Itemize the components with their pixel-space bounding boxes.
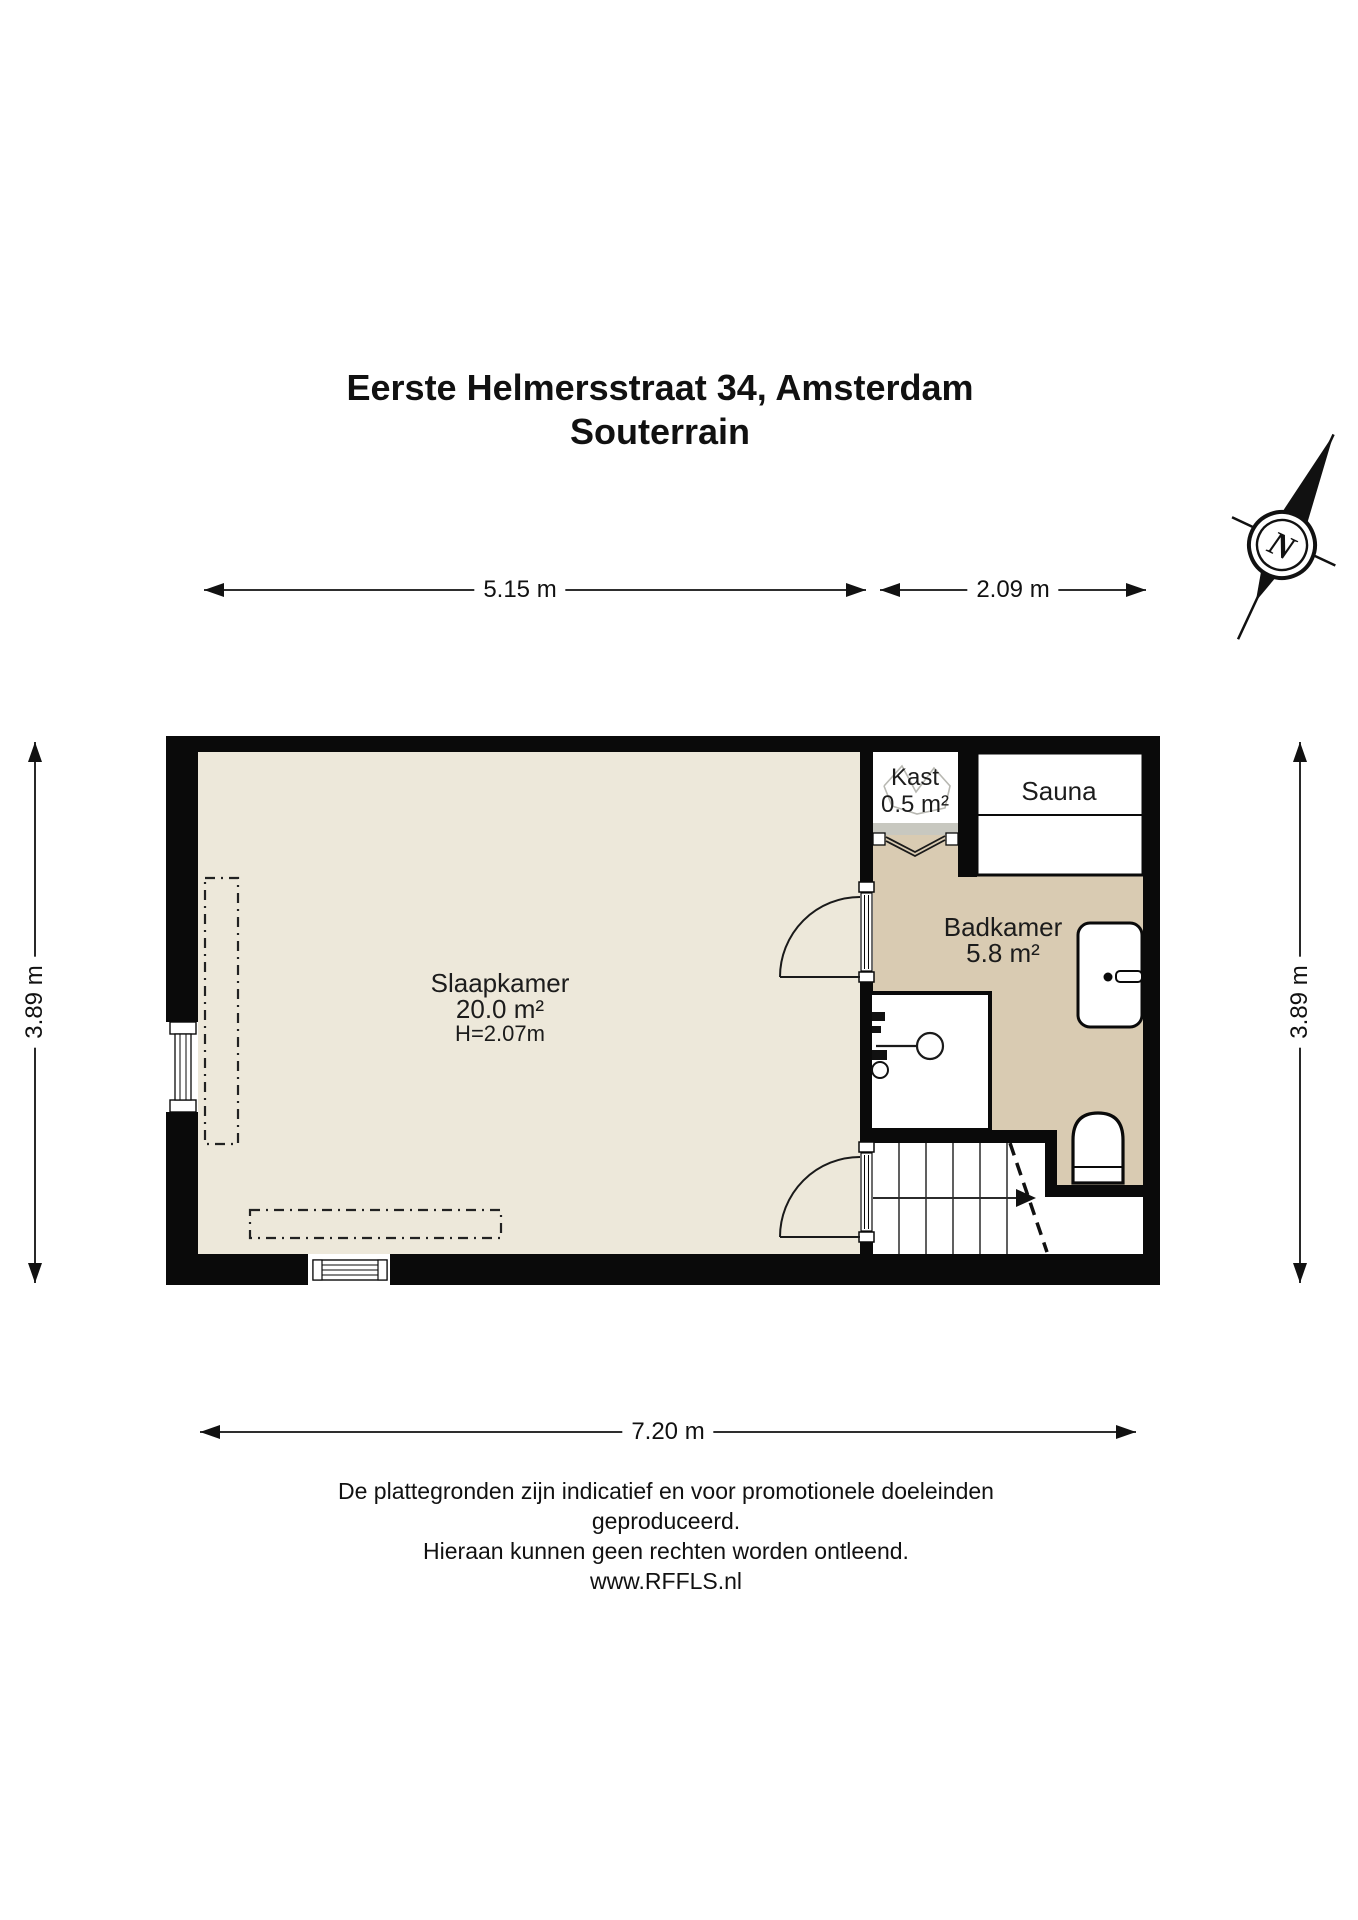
- slaapkamer-area: 20.0 m²: [431, 996, 570, 1022]
- dim-label-bottom: 7.20 m: [622, 1418, 713, 1446]
- sauna-name: Sauna: [1021, 778, 1096, 804]
- wall-closet-right: [958, 736, 977, 877]
- dim-label-top-left: 5.15 m: [474, 576, 565, 604]
- dim-label-top-right: 2.09 m: [967, 576, 1058, 604]
- stairs-landing-floor: [1045, 1197, 1143, 1254]
- sauna-cabin: [977, 753, 1143, 875]
- badkamer-area: 5.8 m²: [944, 940, 1063, 966]
- door-jamb: [859, 1232, 874, 1242]
- floorplan-page: N Eerste Helmersstraat 34, Amsterdam Sou…: [0, 0, 1358, 1920]
- shower-drain: [917, 1033, 943, 1059]
- door-jamb: [859, 972, 874, 982]
- door-panel: [861, 893, 872, 971]
- door-jamb: [873, 833, 885, 845]
- floorplan-drawing: N: [0, 0, 1358, 1920]
- toilet: [1073, 1113, 1123, 1183]
- wall-right: [1143, 736, 1160, 1285]
- compass-north-icon: N: [1186, 410, 1358, 663]
- page-title: Eerste Helmersstraat 34, Amsterdam Soute…: [347, 366, 974, 454]
- room-label-badkamer: Badkamer 5.8 m²: [944, 914, 1063, 966]
- room-label-sauna: Sauna: [1021, 778, 1096, 804]
- dim-label-left: 3.89 m: [21, 956, 49, 1047]
- disclaimer-line2: Hieraan kunnen geen rechten worden ontle…: [320, 1536, 1012, 1566]
- window-left: [175, 1034, 191, 1100]
- kast-name: Kast: [881, 764, 949, 791]
- badkamer-name: Badkamer: [944, 914, 1063, 940]
- wall-bottom-right: [390, 1254, 1160, 1285]
- room-label-kast: Kast 0.5 m²: [881, 764, 949, 818]
- washbasin-tap-icon: [1104, 973, 1113, 982]
- room-label-slaapkamer: Slaapkamer 20.0 m² H=2.07m: [431, 970, 570, 1046]
- dim-label-right: 3.89 m: [1286, 956, 1314, 1047]
- disclaimer-line1: De plattegronden zijn indicatief en voor…: [320, 1476, 1012, 1536]
- washbasin: [1078, 923, 1142, 1027]
- title-floor: Souterrain: [347, 410, 974, 454]
- wall-toilet-nook-horizontal: [1045, 1185, 1143, 1197]
- closet-threshold: [873, 823, 958, 835]
- wall-left-upper: [166, 736, 198, 1022]
- disclaimer: De plattegronden zijn indicatief en voor…: [320, 1476, 1012, 1596]
- wall-top: [166, 736, 1160, 752]
- door-jamb: [859, 1142, 874, 1152]
- door-panel: [861, 1153, 872, 1231]
- wall-divider-bottom: [860, 1242, 873, 1285]
- kast-area: 0.5 m²: [881, 791, 949, 818]
- shower: [870, 993, 990, 1130]
- slaapkamer-name: Slaapkamer: [431, 970, 570, 996]
- door-jamb: [946, 833, 958, 845]
- door-jamb: [859, 882, 874, 892]
- wall-divider-top: [860, 736, 873, 882]
- disclaimer-website: www.RFFLS.nl: [320, 1566, 1012, 1596]
- slaapkamer-height: H=2.07m: [431, 1022, 570, 1046]
- title-address: Eerste Helmersstraat 34, Amsterdam: [347, 366, 974, 410]
- wall-bottom-left: [166, 1254, 308, 1285]
